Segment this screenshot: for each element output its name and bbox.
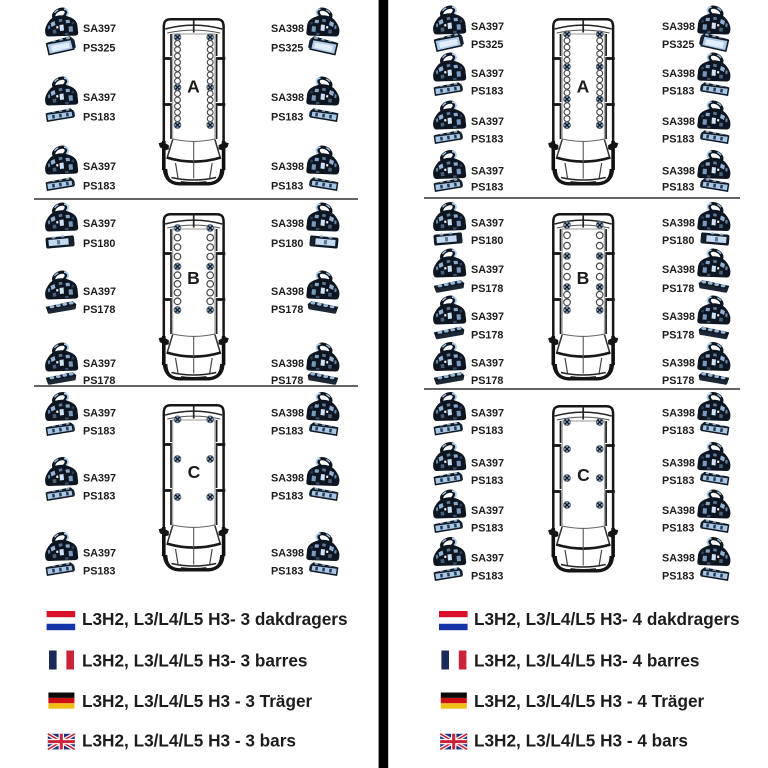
svg-text:PS183: PS183 [662,523,694,535]
svg-text:SA397: SA397 [83,358,116,370]
svg-text:SA397: SA397 [471,21,504,33]
svg-text:PS178: PS178 [471,283,503,295]
svg-text:SA398: SA398 [662,505,695,517]
svg-text:A: A [577,76,590,96]
svg-text:SA398: SA398 [271,358,304,370]
svg-text:PS183: PS183 [662,134,694,146]
svg-text:SA398: SA398 [662,116,695,128]
svg-text:PS183: PS183 [83,491,115,503]
svg-text:PS183: PS183 [471,523,503,535]
svg-text:SA397: SA397 [471,553,504,565]
svg-text:PS180: PS180 [662,235,694,247]
svg-text:SA398: SA398 [662,358,695,370]
svg-text:PS178: PS178 [471,330,503,342]
svg-text:SA398: SA398 [662,166,695,178]
svg-text:SA398: SA398 [662,21,695,33]
svg-text:SA397: SA397 [83,286,116,298]
svg-text:PS178: PS178 [471,375,503,387]
svg-text:SA397: SA397 [471,505,504,517]
svg-text:SA397: SA397 [83,548,116,560]
svg-text:SA397: SA397 [471,311,504,323]
svg-text:PS180: PS180 [271,238,303,250]
svg-text:L3H2, L3/L4/L5 H3- 3 dakdrager: L3H2, L3/L4/L5 H3- 3 dakdragers [82,609,348,629]
svg-text:SA398: SA398 [662,553,695,565]
svg-text:SA398: SA398 [271,286,304,298]
svg-text:SA397: SA397 [83,218,116,230]
svg-text:SA397: SA397 [83,408,116,420]
svg-text:SA397: SA397 [471,358,504,370]
svg-text:SA398: SA398 [662,68,695,80]
svg-text:PS183: PS183 [471,425,503,437]
svg-text:PS183: PS183 [662,475,694,487]
svg-text:PS183: PS183 [271,566,303,578]
svg-text:PS178: PS178 [271,375,303,387]
svg-text:PS183: PS183 [271,181,303,193]
svg-text:SA397: SA397 [471,218,504,230]
svg-text:SA398: SA398 [271,218,304,230]
svg-text:L3H2, L3/L4/L5 H3 - 3 Träger: L3H2, L3/L4/L5 H3 - 3 Träger [82,691,313,711]
svg-text:SA398: SA398 [662,218,695,230]
svg-text:PS183: PS183 [471,182,503,194]
svg-text:SA398: SA398 [271,23,304,35]
svg-text:SA397: SA397 [471,68,504,80]
svg-text:PS178: PS178 [662,283,694,295]
svg-text:SA397: SA397 [83,23,116,35]
svg-text:SA398: SA398 [662,458,695,470]
svg-text:SA397: SA397 [83,161,116,173]
svg-text:C: C [188,462,201,482]
svg-text:SA397: SA397 [471,458,504,470]
svg-text:PS325: PS325 [662,39,694,51]
svg-text:PS183: PS183 [662,571,694,583]
svg-text:PS178: PS178 [83,304,115,316]
svg-text:PS180: PS180 [471,235,503,247]
svg-text:PS178: PS178 [271,304,303,316]
svg-text:L3H2, L3/L4/L5 H3 - 4 Träger: L3H2, L3/L4/L5 H3 - 4 Träger [474,691,705,711]
svg-text:SA397: SA397 [83,473,116,485]
svg-text:C: C [577,465,590,485]
svg-text:PS178: PS178 [83,375,115,387]
svg-text:PS183: PS183 [662,425,694,437]
svg-text:SA398: SA398 [662,311,695,323]
svg-text:PS183: PS183 [83,181,115,193]
svg-text:PS183: PS183 [271,112,303,124]
svg-text:L3H2, L3/L4/L5 H3- 4 dakdrager: L3H2, L3/L4/L5 H3- 4 dakdragers [474,609,740,629]
svg-text:PS325: PS325 [271,43,303,55]
svg-text:B: B [577,268,590,288]
svg-text:SA398: SA398 [271,548,304,560]
svg-text:SA397: SA397 [471,408,504,420]
svg-text:SA398: SA398 [662,264,695,276]
svg-text:PS183: PS183 [471,571,503,583]
svg-text:PS183: PS183 [471,86,503,98]
svg-text:L3H2, L3/L4/L5 H3- 4 barres: L3H2, L3/L4/L5 H3- 4 barres [474,651,699,671]
svg-text:PS178: PS178 [662,330,694,342]
svg-text:L3H2, L3/L4/L5 H3 - 4 bars: L3H2, L3/L4/L5 H3 - 4 bars [474,731,688,751]
svg-text:SA398: SA398 [662,408,695,420]
svg-text:PS325: PS325 [83,43,115,55]
svg-text:A: A [187,76,200,96]
svg-text:L3H2, L3/L4/L5 H3- 3 barres: L3H2, L3/L4/L5 H3- 3 barres [82,651,307,671]
svg-text:PS183: PS183 [662,86,694,98]
svg-text:PS183: PS183 [471,475,503,487]
svg-text:PS183: PS183 [83,566,115,578]
svg-text:PS183: PS183 [271,426,303,438]
svg-text:PS183: PS183 [662,182,694,194]
svg-text:SA397: SA397 [471,116,504,128]
svg-text:PS183: PS183 [83,426,115,438]
svg-text:PS183: PS183 [271,491,303,503]
svg-text:SA397: SA397 [83,92,116,104]
svg-text:SA398: SA398 [271,408,304,420]
svg-text:SA398: SA398 [271,92,304,104]
svg-text:L3H2, L3/L4/L5 H3 - 3 bars: L3H2, L3/L4/L5 H3 - 3 bars [82,731,296,751]
svg-text:PS183: PS183 [471,134,503,146]
svg-text:SA397: SA397 [471,166,504,178]
svg-text:SA398: SA398 [271,161,304,173]
svg-text:PS180: PS180 [83,238,115,250]
svg-text:SA397: SA397 [471,264,504,276]
svg-text:B: B [187,268,200,288]
svg-text:PS178: PS178 [662,375,694,387]
svg-text:SA398: SA398 [271,473,304,485]
svg-text:PS325: PS325 [471,39,503,51]
svg-text:PS183: PS183 [83,112,115,124]
